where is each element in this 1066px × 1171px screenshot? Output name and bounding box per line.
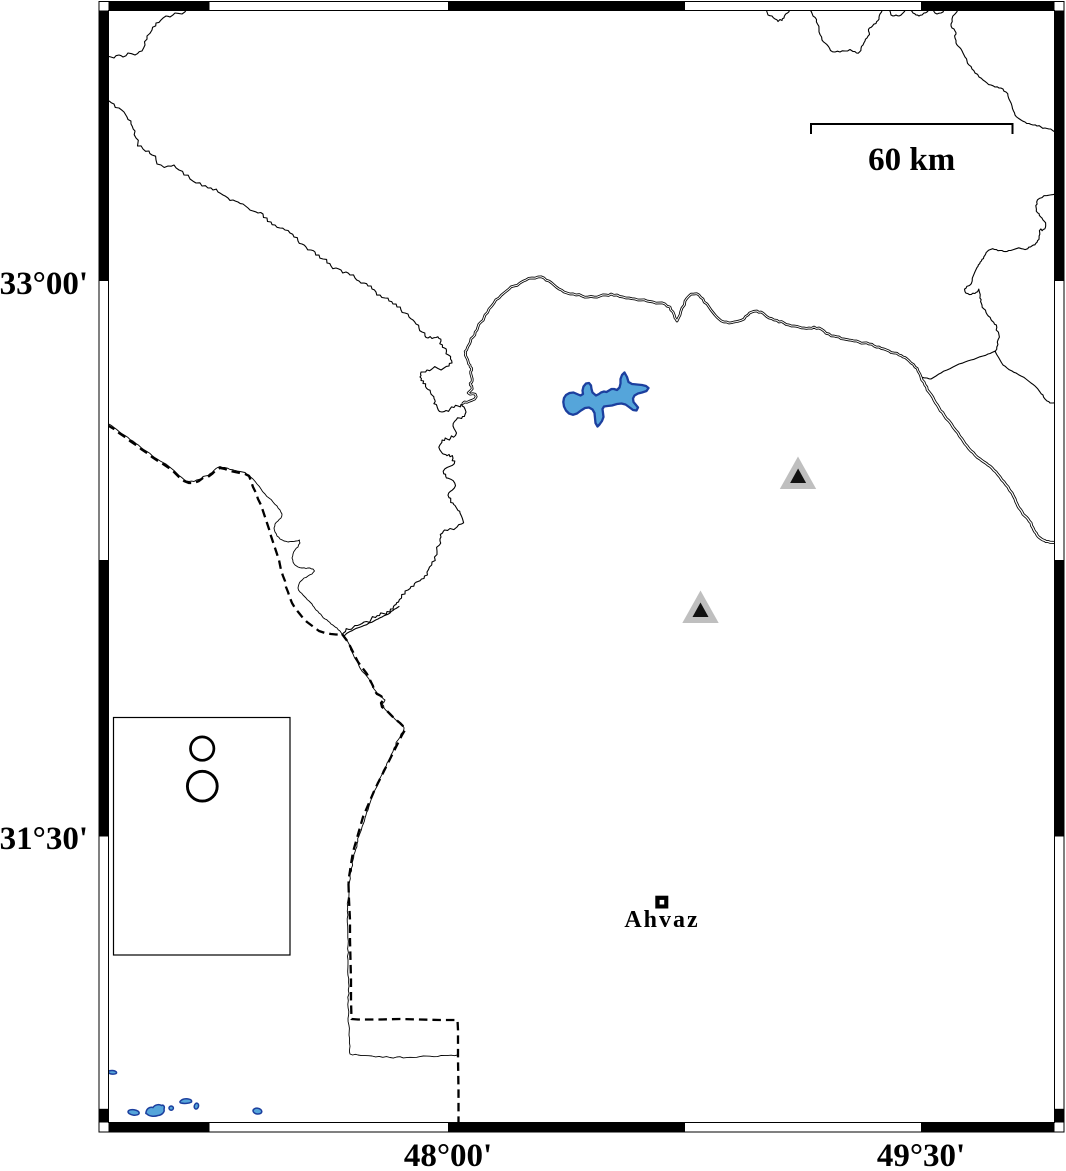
svg-text:60 km: 60 km (868, 142, 955, 178)
svg-text:Ahvaz: Ahvaz (624, 907, 699, 933)
svg-text:31°30': 31°30' (0, 821, 88, 857)
svg-text:49°30': 49°30' (877, 1138, 965, 1171)
svg-text:48°00': 48°00' (404, 1138, 492, 1171)
svg-text:33°00': 33°00' (0, 266, 88, 302)
